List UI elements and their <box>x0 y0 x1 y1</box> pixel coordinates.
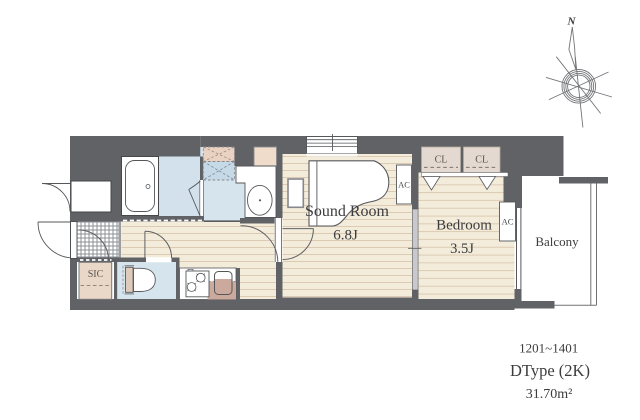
svg-text:CL: CL <box>475 155 488 166</box>
svg-text:DType (2K): DType (2K) <box>510 361 590 380</box>
svg-text:CL: CL <box>435 155 448 166</box>
svg-text:31.70m²: 31.70m² <box>526 387 573 402</box>
svg-text:N: N <box>567 16 577 28</box>
svg-text:SIC: SIC <box>88 269 104 280</box>
svg-text:Balcony: Balcony <box>535 234 579 249</box>
svg-text:AC: AC <box>398 180 410 190</box>
svg-text:Sound Room: Sound Room <box>305 203 390 220</box>
svg-text:AC: AC <box>502 217 514 227</box>
svg-text:3.5J: 3.5J <box>450 241 474 257</box>
svg-text:6.8J: 6.8J <box>333 228 358 244</box>
svg-text:Bedroom: Bedroom <box>436 218 492 234</box>
svg-text:1201~1401: 1201~1401 <box>519 341 578 356</box>
